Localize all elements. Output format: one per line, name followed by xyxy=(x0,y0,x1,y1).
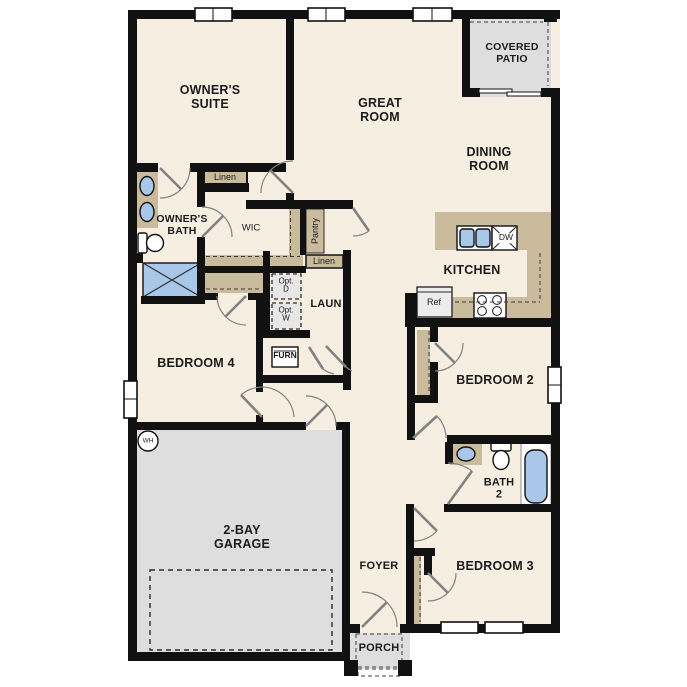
bedroom2-closet-shelf xyxy=(417,330,430,395)
label-garage: 2-BAY GARAGE xyxy=(197,523,287,551)
label-laundry: LAUN xyxy=(310,298,341,310)
bath2-sink xyxy=(457,447,475,461)
patio-slider-panel-2 xyxy=(507,92,541,96)
label-covered-patio: COVERED PATIO xyxy=(472,42,552,66)
label-owners-bath: OWNER'S BATH xyxy=(150,214,214,238)
label-opt-washer: Opt. W xyxy=(278,307,293,324)
label-linen-upper: Linen xyxy=(214,172,236,182)
label-opt-dryer: Opt. D xyxy=(278,278,293,295)
owners-toilet-tank xyxy=(138,233,147,253)
kitchen-sink-basin-2 xyxy=(476,229,490,247)
bedroom4-closet-shelf xyxy=(204,273,263,293)
label-bath2: BATH 2 xyxy=(484,477,515,502)
label-water-heater: WH xyxy=(143,437,154,444)
label-furnace: FURN xyxy=(273,351,297,361)
label-porch: PORCH xyxy=(359,642,400,654)
label-bedroom2: BEDROOM 2 xyxy=(456,373,534,387)
bath2-toilet-bowl xyxy=(493,451,509,470)
window-bedroom3-1 xyxy=(441,622,478,633)
label-bedroom4: BEDROOM 4 xyxy=(157,356,235,370)
label-dishwasher: DW xyxy=(498,233,514,243)
label-bedroom3: BEDROOM 3 xyxy=(456,559,534,573)
label-wic: WIC xyxy=(242,224,260,235)
label-linen-lower: Linen xyxy=(313,256,335,266)
label-great-room: GREAT ROOM xyxy=(340,96,420,124)
floor-plan-page: OWNER'S SUITE GREAT ROOM COVERED PATIO D… xyxy=(0,0,687,687)
label-foyer: FOYER xyxy=(360,560,399,572)
label-dining-room: DINING ROOM xyxy=(449,145,529,173)
owners-bath-sink-1 xyxy=(140,177,154,196)
label-kitchen: KITCHEN xyxy=(444,263,501,277)
wic-shelf-bottom xyxy=(205,255,303,267)
label-owners-suite: OWNER'S SUITE xyxy=(162,83,258,111)
porch-step-dashed xyxy=(358,669,400,676)
kitchen-sink-basin-1 xyxy=(460,229,474,247)
label-pantry: Pantry xyxy=(310,218,320,244)
bath2-tub xyxy=(525,450,547,503)
window-bedroom3-2 xyxy=(485,622,523,633)
label-refrigerator: Ref xyxy=(427,297,441,307)
